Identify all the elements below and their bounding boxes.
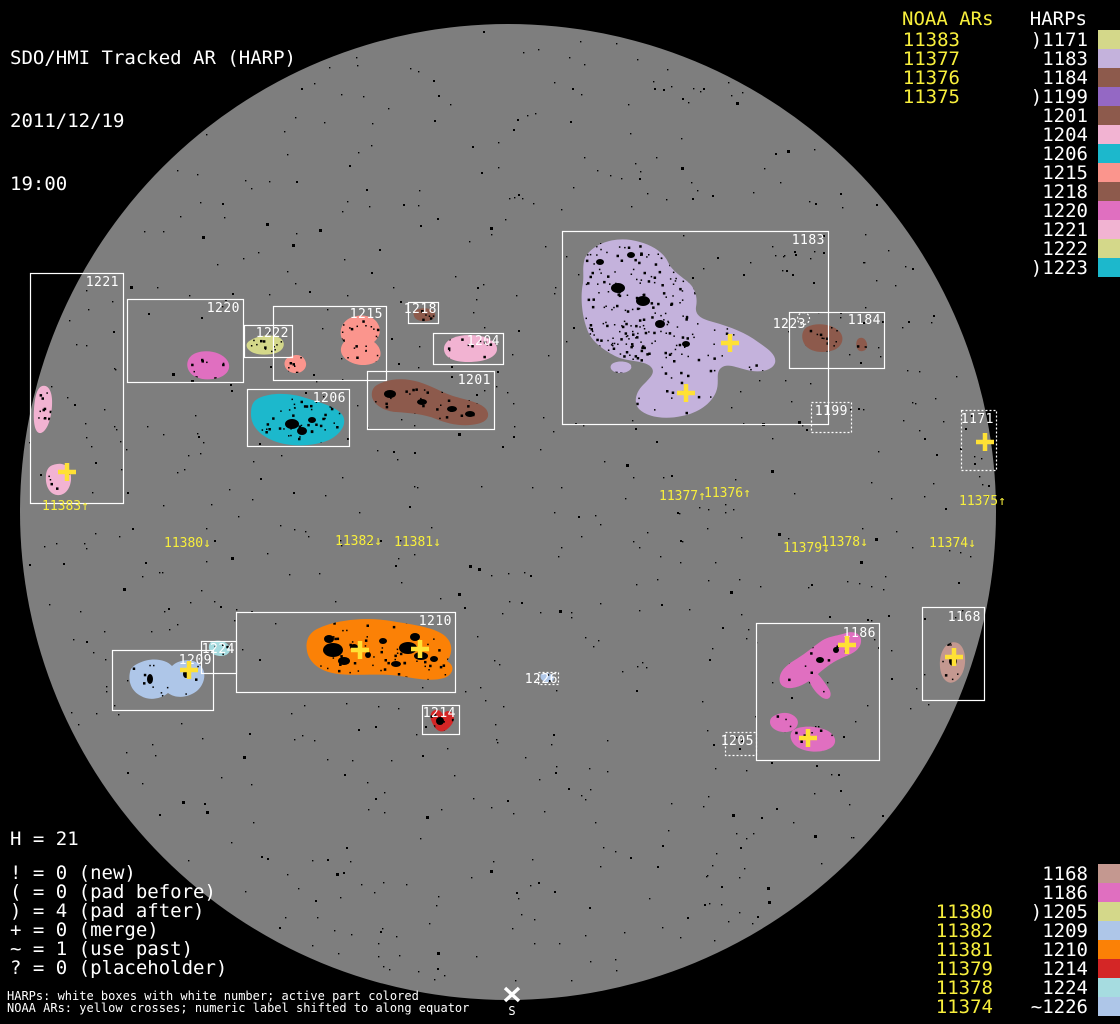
sunspot bbox=[323, 643, 343, 657]
harp-color-swatch-1223 bbox=[1098, 258, 1120, 277]
harp-color-swatch-1215 bbox=[1098, 163, 1120, 182]
harp-color-swatch-1218 bbox=[1098, 182, 1120, 201]
harp-box-label-1226: 1226 bbox=[525, 672, 558, 687]
noaa-equator-label-11382: 11382↓ bbox=[335, 534, 382, 549]
harps-header: HARPs bbox=[1000, 10, 1087, 29]
harp-box-label-1205: 1205 bbox=[721, 734, 754, 749]
harp-box-label-1199: 1199 bbox=[815, 404, 848, 419]
harp-box-label-1168: 1168 bbox=[948, 610, 981, 625]
harp-box-label-1223: 1223 bbox=[773, 317, 806, 332]
sunspot bbox=[147, 674, 153, 684]
active-region-blob bbox=[341, 316, 381, 365]
noaa-equator-label-11377: 11377↑ bbox=[659, 489, 706, 504]
noaa-equator-label-11381: 11381↓ bbox=[394, 535, 441, 550]
noaa-ars-header: NOAA ARs bbox=[902, 10, 994, 29]
harp-color-swatch-1199 bbox=[1098, 87, 1120, 106]
harp-color-swatch-1226 bbox=[1098, 997, 1120, 1016]
harp-box-label-1184: 1184 bbox=[848, 313, 881, 328]
harp-color-swatch-1224 bbox=[1098, 978, 1120, 997]
harp-color-swatch-1222 bbox=[1098, 239, 1120, 258]
sunspot bbox=[682, 341, 690, 347]
noaa-equator-label-11374: 11374↓ bbox=[929, 536, 976, 551]
counter-line-placeholder: ? = 0 (placeholder) bbox=[10, 959, 227, 978]
harp-item-1226: ~1226 bbox=[1000, 998, 1088, 1017]
harp-color-swatch-1183 bbox=[1098, 49, 1120, 68]
harp-color-swatch-1221 bbox=[1098, 220, 1120, 239]
noaa-equator-label-11383: 11383↑ bbox=[42, 499, 89, 514]
harp-color-swatch-1204 bbox=[1098, 125, 1120, 144]
sunspot bbox=[285, 419, 299, 429]
noaa-equator-label-11380: 11380↓ bbox=[164, 536, 211, 551]
footer-noaa-note: NOAA ARs: yellow crosses; numeric label … bbox=[7, 1002, 469, 1014]
harp-box-label-1220: 1220 bbox=[207, 301, 240, 316]
harp-box-label-1201: 1201 bbox=[458, 373, 491, 388]
harp-box-label-1218: 1218 bbox=[404, 302, 437, 317]
sunspot bbox=[391, 661, 401, 667]
harp-box-label-1183: 1183 bbox=[792, 233, 825, 248]
sunspot bbox=[384, 390, 396, 398]
harp-box-label-1215: 1215 bbox=[350, 307, 383, 322]
sunspot bbox=[297, 427, 307, 435]
harp-color-swatch-1206 bbox=[1098, 144, 1120, 163]
harp-plot-screen: 1221122012221215121812041206120111831184… bbox=[0, 0, 1120, 1024]
harp-color-swatch-1214 bbox=[1098, 959, 1120, 978]
harp-color-swatch-1205 bbox=[1098, 902, 1120, 921]
plot-header: SDO/HMI Tracked AR (HARP) 2011/12/19 19:… bbox=[10, 6, 296, 237]
app-title: SDO/HMI Tracked AR (HARP) bbox=[10, 48, 296, 69]
date-label: 2011/12/19 bbox=[10, 111, 296, 132]
noaa-equator-label-11376: 11376↑ bbox=[704, 486, 751, 501]
sunspot bbox=[324, 635, 334, 643]
harp-color-swatch-1171 bbox=[1098, 30, 1120, 49]
harp-box-label-1206: 1206 bbox=[313, 391, 346, 406]
harp-box-label-1171: 1171 bbox=[961, 412, 994, 427]
harp-box-label-1210: 1210 bbox=[419, 614, 452, 629]
sunspot bbox=[611, 283, 625, 293]
south-pole-label: S bbox=[508, 1004, 515, 1018]
harp-color-swatch-1184 bbox=[1098, 68, 1120, 87]
sunspot bbox=[410, 633, 420, 641]
harp-item-1223: )1223 bbox=[1000, 259, 1088, 278]
harp-box-label-1221: 1221 bbox=[86, 275, 119, 290]
sunspot bbox=[308, 417, 316, 423]
harp-box-label-1222: 1222 bbox=[256, 326, 289, 341]
noaa-ar-item: 11374 bbox=[900, 998, 993, 1017]
sunspot bbox=[655, 320, 665, 328]
harp-color-swatch-1168 bbox=[1098, 864, 1120, 883]
harp-count: H = 21 bbox=[10, 830, 79, 849]
harp-color-swatch-1220 bbox=[1098, 201, 1120, 220]
harp-box-label-1204: 1204 bbox=[467, 334, 500, 349]
harp-color-swatch-1186 bbox=[1098, 883, 1120, 902]
harp-color-swatch-1210 bbox=[1098, 940, 1120, 959]
noaa-equator-label-11375: 11375↑ bbox=[959, 494, 1006, 509]
sunspot bbox=[430, 656, 438, 662]
noaa-ar-item: 11375 bbox=[902, 88, 960, 107]
sunspot bbox=[365, 652, 371, 658]
sunspot bbox=[816, 657, 824, 663]
noaa-equator-label-11378: 11378↓ bbox=[821, 535, 868, 550]
harp-box-label-1224: 1224 bbox=[202, 642, 235, 657]
harp-color-swatch-1201 bbox=[1098, 106, 1120, 125]
sunspot bbox=[627, 252, 635, 258]
time-label: 19:00 bbox=[10, 174, 296, 195]
harp-color-swatch-1209 bbox=[1098, 921, 1120, 940]
harp-box-label-1214: 1214 bbox=[423, 706, 456, 721]
sunspot bbox=[417, 399, 427, 405]
